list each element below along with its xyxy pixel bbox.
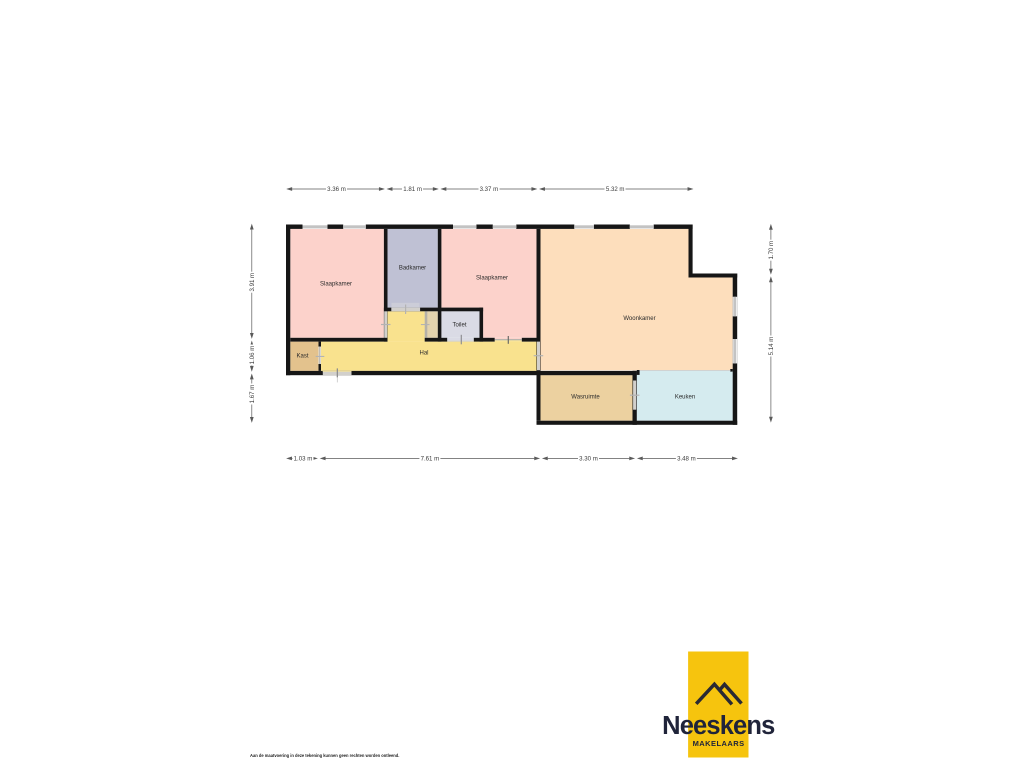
svg-text:MAKELAARS: MAKELAARS	[693, 739, 745, 748]
svg-text:Neeskens: Neeskens	[662, 712, 775, 740]
svg-text:Wasruimte: Wasruimte	[571, 395, 600, 401]
svg-text:1.70 m: 1.70 m	[768, 241, 775, 260]
svg-text:Slaapkamer: Slaapkamer	[320, 282, 352, 288]
svg-text:Toilet: Toilet	[452, 323, 466, 329]
svg-text:3.48 m: 3.48 m	[677, 455, 696, 462]
svg-text:3.36 m: 3.36 m	[327, 186, 346, 193]
svg-text:7.61 m: 7.61 m	[421, 455, 440, 462]
svg-text:5.14 m: 5.14 m	[768, 337, 775, 356]
svg-text:1.81 m: 1.81 m	[403, 186, 422, 193]
svg-text:Hal: Hal	[419, 351, 428, 357]
svg-text:1.06 m: 1.06 m	[249, 346, 256, 365]
svg-text:Kast: Kast	[296, 354, 308, 360]
svg-text:1.67 m: 1.67 m	[249, 385, 256, 404]
svg-text:Aan de maatvoering in deze tek: Aan de maatvoering in deze tekening kunn…	[250, 753, 399, 758]
svg-text:3.37 m: 3.37 m	[480, 186, 499, 193]
svg-text:5.32 m: 5.32 m	[606, 186, 625, 193]
svg-text:3.30 m: 3.30 m	[579, 455, 598, 462]
svg-text:Slaapkamer: Slaapkamer	[476, 276, 508, 282]
svg-text:Keuken: Keuken	[675, 395, 695, 401]
svg-text:Badkamer: Badkamer	[399, 266, 426, 272]
svg-text:Woonkamer: Woonkamer	[623, 316, 655, 322]
svg-text:1.03 m: 1.03 m	[294, 455, 313, 462]
svg-text:3.91 m: 3.91 m	[249, 273, 256, 292]
